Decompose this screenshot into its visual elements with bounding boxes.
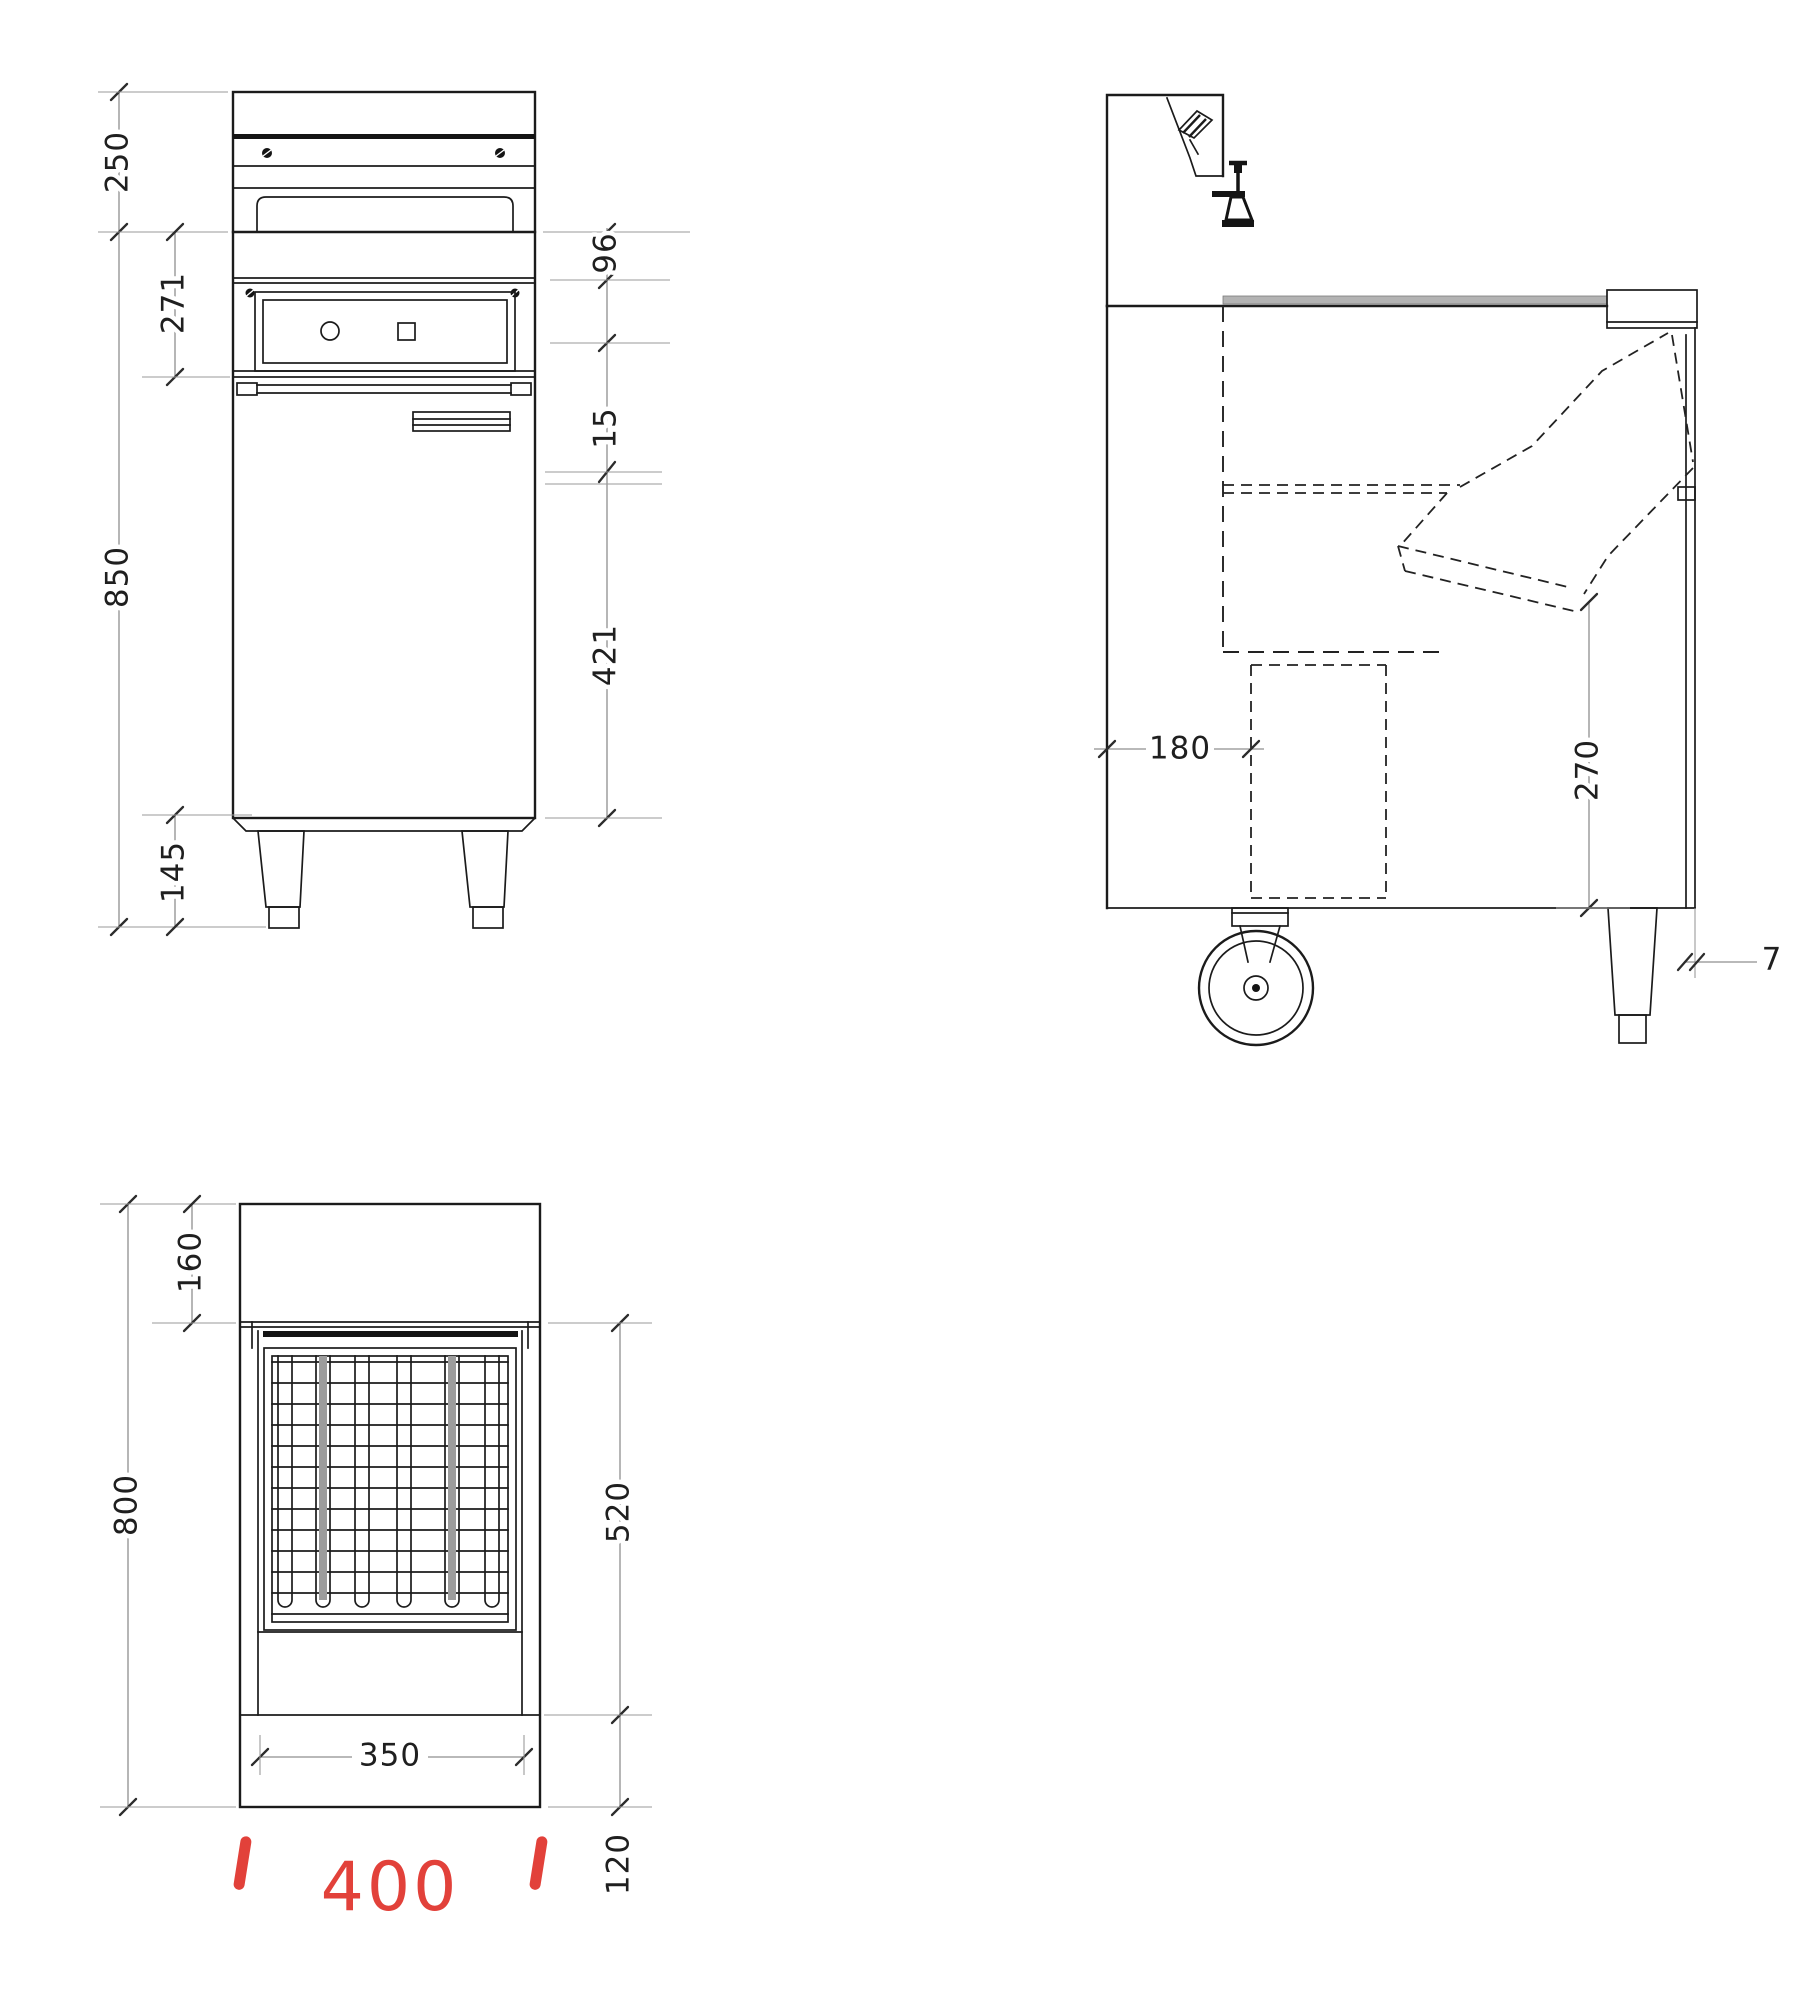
valve-icon bbox=[1212, 163, 1254, 227]
technical-drawing: 250 850 271 145 96 15 421 bbox=[0, 0, 1819, 2000]
dim-800-label: 800 bbox=[109, 1474, 145, 1536]
plan-outline bbox=[240, 1204, 540, 1807]
dim-270-label: 270 bbox=[1570, 739, 1606, 801]
dim-96-label: 96 bbox=[588, 232, 624, 273]
plan-dims-left: 800 160 bbox=[100, 1196, 236, 1815]
dim-350-label: 350 bbox=[359, 1738, 421, 1774]
dim-520-label: 520 bbox=[601, 1481, 637, 1543]
drawing-sheet: 250 850 271 145 96 15 421 bbox=[0, 0, 1819, 2000]
dim-250-label: 250 bbox=[100, 131, 136, 193]
dim-270: 270 bbox=[1556, 594, 1630, 916]
control-panel bbox=[246, 289, 520, 372]
red-tick-left bbox=[233, 1836, 252, 1891]
dim-160-label: 160 bbox=[173, 1231, 209, 1293]
hidden-tank-lines bbox=[1223, 306, 1693, 898]
side-worktop bbox=[1223, 296, 1607, 304]
dim-271-label: 271 bbox=[156, 272, 192, 334]
dim-120-label: 120 bbox=[601, 1833, 637, 1895]
dim-400-label: 400 bbox=[321, 1848, 460, 1927]
red-tick-right bbox=[529, 1836, 548, 1891]
dim-7: 7 bbox=[1678, 908, 1782, 978]
dim-15-label: 15 bbox=[588, 407, 624, 448]
side-view: 180 270 7 bbox=[1094, 95, 1782, 1045]
front-legs bbox=[233, 818, 535, 928]
dim-145-label: 145 bbox=[156, 841, 192, 903]
dim-7-label: 7 bbox=[1762, 942, 1783, 978]
door-handle bbox=[413, 412, 510, 431]
caster-wheel-icon bbox=[1199, 908, 1313, 1045]
element-tubes bbox=[278, 1356, 499, 1607]
front-dims-right: 96 15 421 bbox=[543, 224, 690, 826]
screw-icon bbox=[262, 148, 505, 158]
pilot-light-icon bbox=[398, 323, 415, 340]
basket-hanger-band bbox=[257, 197, 513, 232]
front-view bbox=[233, 92, 535, 928]
dim-180: 180 bbox=[1094, 731, 1264, 767]
plan-dims-right: 520 120 bbox=[544, 1315, 652, 1895]
drip-rail bbox=[237, 383, 531, 395]
dim-180-label: 180 bbox=[1149, 731, 1211, 767]
width-400-annotation: 400 bbox=[233, 1836, 548, 1927]
front-top-divider bbox=[233, 134, 535, 139]
side-leg bbox=[1608, 908, 1657, 1043]
thermostat-knob-icon bbox=[321, 322, 339, 340]
front-body-outline bbox=[233, 92, 535, 818]
basket-grid bbox=[258, 1348, 522, 1632]
dim-421-label: 421 bbox=[588, 624, 624, 686]
front-dims-left: 250 850 271 145 bbox=[98, 84, 266, 935]
dim-350: 350 bbox=[252, 1735, 532, 1775]
tank-front-edge bbox=[263, 1331, 518, 1337]
flue-detail-icon bbox=[1179, 111, 1212, 154]
dim-850-label: 850 bbox=[100, 546, 136, 608]
plan-view: 350 bbox=[240, 1204, 540, 1807]
